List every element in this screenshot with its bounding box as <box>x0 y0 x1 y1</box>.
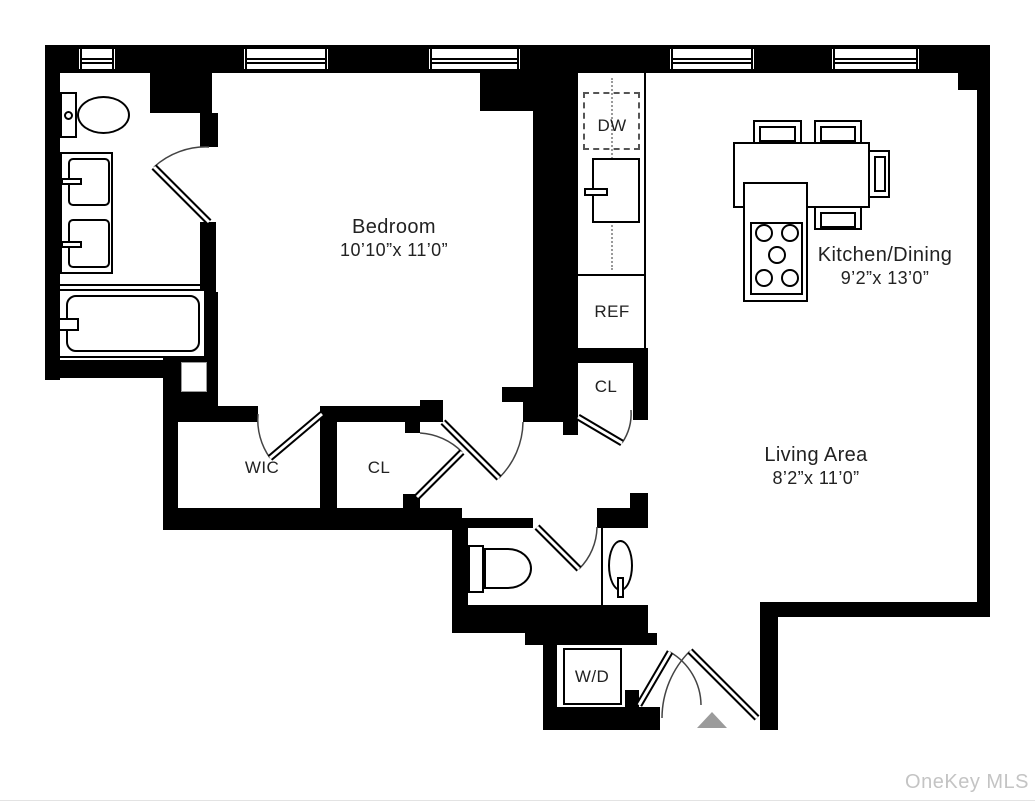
window-glyph <box>76 47 118 71</box>
room-label-bedroom: Bedroom 10’10”x 11’0” <box>340 216 448 261</box>
window-pane-line <box>78 58 116 60</box>
toilet-flush-knob <box>64 111 73 120</box>
door-leaf <box>154 167 209 222</box>
door-leaf <box>154 167 209 222</box>
bathroom2-divider-line <box>601 528 603 606</box>
wall <box>760 602 778 730</box>
appliance-label-dishwasher: DW <box>597 116 626 136</box>
door-leaf <box>270 414 322 458</box>
door-leaf <box>270 414 322 458</box>
window-glyph <box>426 47 523 71</box>
wall <box>502 387 533 402</box>
dining-chair-inner <box>820 126 856 142</box>
room-dimensions: 10’10”x 11’0” <box>340 240 448 261</box>
room-label-closet-hall: CL <box>368 458 391 478</box>
stove-burner <box>755 224 773 242</box>
door-leaf <box>690 651 757 718</box>
wall <box>633 363 648 420</box>
window-end-cap <box>112 47 117 71</box>
wall <box>563 348 648 363</box>
window-end-cap <box>242 47 247 71</box>
door-arc <box>154 147 209 167</box>
wall <box>977 45 990 617</box>
window-pane-line <box>831 62 920 64</box>
wall <box>337 406 405 422</box>
wall <box>200 113 218 147</box>
wall <box>597 508 648 528</box>
wall <box>45 360 178 378</box>
wall <box>150 73 212 113</box>
stove-burner <box>755 269 773 287</box>
window-pane-line <box>831 58 920 60</box>
faucet <box>61 241 82 248</box>
window-pane-line <box>428 62 521 64</box>
wall <box>178 406 258 422</box>
appliance-label-refrigerator: REF <box>594 302 629 322</box>
door-arc <box>662 651 690 718</box>
window-pane-line <box>669 58 755 60</box>
wall <box>760 602 988 617</box>
wall <box>420 400 443 422</box>
wall <box>320 406 337 527</box>
window-glyph <box>241 47 331 71</box>
door-arc <box>622 410 631 443</box>
window-pane-line <box>243 58 329 60</box>
shaft <box>181 362 207 392</box>
room-name: Bedroom <box>340 216 448 240</box>
room-dimensions: 9’2”x 13’0” <box>818 268 953 289</box>
entrance-triangle-icon <box>697 712 727 728</box>
door-leaf <box>578 417 622 443</box>
window-pane-line <box>78 62 116 64</box>
floor-plan: Bedroom 10’10”x 11’0” Kitchen/Dining 9’2… <box>0 0 1035 801</box>
room-label-living-area: Living Area 8’2”x 11’0” <box>764 444 867 489</box>
dining-chair-inner <box>759 126 796 142</box>
wall <box>200 222 216 292</box>
toilet-bowl <box>484 548 532 589</box>
bathtub-basin <box>66 295 200 352</box>
door-arc <box>420 433 462 452</box>
bathroom-tub-divider-line <box>58 284 208 286</box>
appliance-label-washer-dryer: W/D <box>575 667 609 687</box>
kitchen-faucet <box>584 188 608 196</box>
room-dimensions: 8’2”x 11’0” <box>764 468 867 489</box>
door-leaf <box>578 417 622 443</box>
door-arc <box>579 527 597 569</box>
room-label-closet-kitchen: CL <box>595 377 618 397</box>
faucet <box>61 178 82 185</box>
stove-burner <box>781 224 799 242</box>
door-leaf <box>690 651 757 718</box>
window-end-cap <box>916 47 921 71</box>
door-arc <box>258 414 270 458</box>
door-arc <box>670 652 701 705</box>
dining-chair-inner <box>820 212 856 228</box>
toilet-tank <box>468 545 484 593</box>
door-leaf <box>417 452 462 497</box>
window-pane-line <box>428 58 521 60</box>
wall <box>452 605 648 633</box>
room-name: Living Area <box>764 444 867 468</box>
kitchen-counter-edge-line <box>644 73 646 348</box>
window-end-cap <box>668 47 673 71</box>
window-end-cap <box>427 47 432 71</box>
window-end-cap <box>830 47 835 71</box>
refrigerator-top-line <box>578 274 645 276</box>
door-leaf <box>639 652 670 705</box>
sink-faucet <box>617 577 624 598</box>
wall <box>405 406 420 433</box>
door-leaf <box>537 527 579 569</box>
stove-burner <box>781 269 799 287</box>
door-leaf <box>443 422 499 478</box>
window-end-cap <box>751 47 756 71</box>
wall <box>625 690 639 707</box>
door-leaf <box>417 452 462 497</box>
dining-chair-inner <box>874 156 886 192</box>
window-pane-line <box>669 62 755 64</box>
room-label-wic: WIC <box>245 458 279 478</box>
window-pane-line <box>243 62 329 64</box>
tub-faucet <box>58 318 79 331</box>
wall <box>403 494 420 512</box>
wall <box>543 707 660 730</box>
window-end-cap <box>77 47 82 71</box>
door-leafs <box>154 167 757 718</box>
window-glyph <box>829 47 922 71</box>
room-name: Kitchen/Dining <box>818 244 953 268</box>
toilet-bowl <box>77 96 130 134</box>
stove-burner <box>768 246 786 264</box>
door-leaf <box>443 422 499 478</box>
window-glyph <box>667 47 757 71</box>
watermark: OneKey MLS <box>905 771 1029 794</box>
door-leaf <box>639 652 670 705</box>
wall <box>206 292 218 354</box>
door-leaf <box>537 527 579 569</box>
window-end-cap <box>325 47 330 71</box>
door-arc <box>499 422 523 478</box>
window-end-cap <box>517 47 522 71</box>
room-label-kitchen-dining: Kitchen/Dining 9’2”x 13’0” <box>818 244 953 289</box>
